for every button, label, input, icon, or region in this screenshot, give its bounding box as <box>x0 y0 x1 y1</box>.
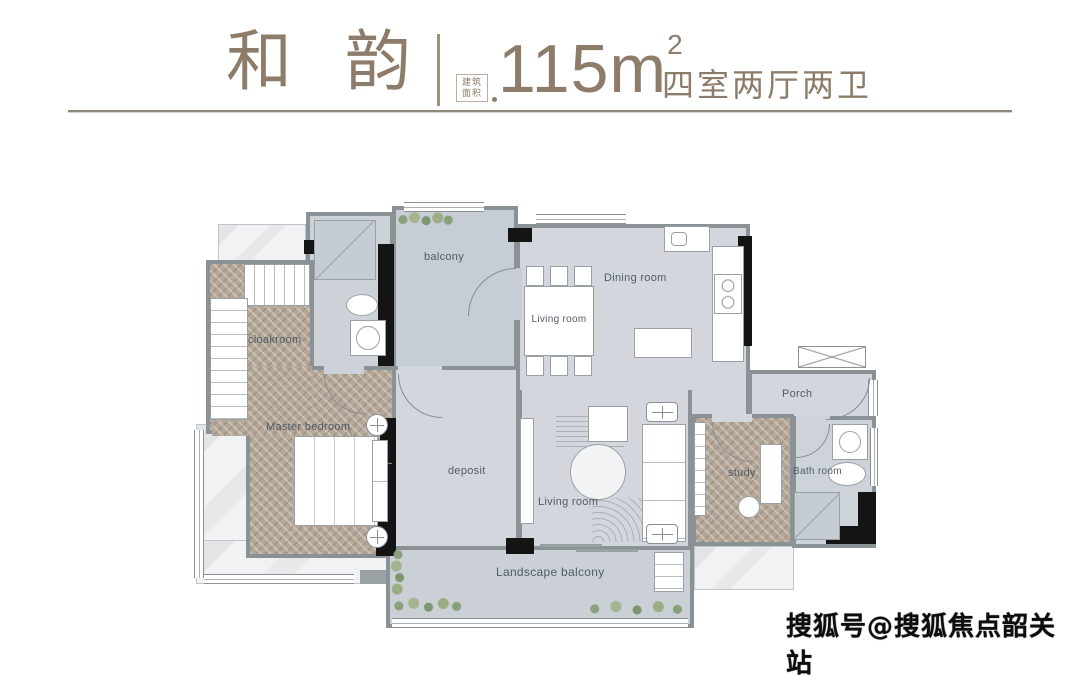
label-study: study <box>728 467 756 479</box>
sliding-door-leaf-1 <box>540 544 602 547</box>
dining-chair <box>550 266 568 286</box>
wall-black-2 <box>508 228 532 242</box>
floorplan-page: { "header": { "title": "和 韵", "area_stam… <box>0 0 1080 649</box>
round-rug <box>570 444 626 500</box>
bath-shower <box>794 492 840 540</box>
cloakroom-cabinet-top <box>244 264 310 306</box>
title-divider <box>437 34 440 106</box>
door-gap-bath <box>796 416 830 424</box>
study-chair <box>738 496 760 518</box>
stove <box>714 274 742 314</box>
label-dining-room: Dining room <box>604 272 667 284</box>
plan-title: 和 韵 <box>226 22 427 101</box>
bath-sink <box>832 424 868 460</box>
label-landscape-balcony: Landscape balcony <box>496 565 605 579</box>
plants-balcony-top <box>396 212 454 226</box>
label-cloakroom: cloakroom <box>248 334 301 346</box>
area-value: 115m2 <box>498 30 683 107</box>
plants-balcony-bottom-left <box>390 596 464 614</box>
sohu-watermark: 搜狐号@搜狐焦点韶关站 <box>786 606 1080 680</box>
wall-black-10 <box>858 492 876 528</box>
cloakroom-wardrobe-left <box>210 298 248 420</box>
window-living-top <box>536 214 626 224</box>
label-living-room-bottom: Living room <box>538 496 598 508</box>
door-gap-master-bath <box>324 366 364 374</box>
dining-chair <box>526 356 544 376</box>
balcony-bench <box>654 552 684 592</box>
label-porch: Porch <box>782 388 812 400</box>
dining-chair <box>550 356 568 376</box>
sofa-side-table-top <box>646 402 678 422</box>
tv-cabinet <box>520 418 534 524</box>
bed-pillows <box>372 440 388 522</box>
door-gap-study <box>712 414 752 422</box>
window-bath-right <box>870 428 878 486</box>
door-gap-deposit <box>398 366 442 374</box>
porch-closet <box>798 346 866 368</box>
plants-balcony-side <box>390 550 406 596</box>
area-exponent: 2 <box>667 29 683 60</box>
label-master-bedroom: Master bedroom <box>266 421 350 433</box>
label-deposit: deposit <box>448 465 486 477</box>
window-porch-right <box>868 380 878 416</box>
toilet-master-bath <box>346 294 378 316</box>
ottoman <box>588 406 628 442</box>
layout-spec: 四室两厅两卫 <box>662 60 872 106</box>
platform-bottom-right <box>694 546 794 590</box>
shower-master-bath <box>314 220 376 280</box>
window-balcony-top <box>404 202 484 212</box>
washer <box>350 320 386 356</box>
sofa-side-table-bottom <box>646 524 678 544</box>
header-rule <box>68 110 1012 113</box>
nightstand-top <box>366 414 388 436</box>
label-bath-room: Bath room <box>793 466 842 477</box>
area-stamp: 建筑 面积 <box>456 74 488 102</box>
window-balcony-bottom <box>392 618 688 628</box>
dining-chair <box>526 266 544 286</box>
sliding-door-leaf-2 <box>576 549 638 552</box>
bed <box>294 436 378 526</box>
area-stamp-line1: 建筑 <box>458 77 486 88</box>
kitchen-sink <box>664 226 710 252</box>
label-living-room-top: Living room <box>524 314 594 325</box>
label-balcony: balcony <box>424 251 464 263</box>
kitchen-island <box>634 328 692 358</box>
sink-basin <box>671 232 687 246</box>
wall-black-6 <box>506 538 534 554</box>
bath-sink-basin <box>839 431 861 453</box>
dining-chair <box>574 356 592 376</box>
terrace-top-left <box>218 224 306 262</box>
area-stamp-dot <box>492 97 497 102</box>
window-terrace-bottom <box>204 574 354 584</box>
window-terrace-left <box>194 430 204 578</box>
study-desk <box>760 444 782 504</box>
dining-chair <box>574 266 592 286</box>
study-wardrobe <box>694 422 706 516</box>
nightstand-bottom <box>366 526 388 548</box>
area-stamp-line2: 面积 <box>458 88 486 99</box>
plants-balcony-bottom-right <box>582 600 688 616</box>
washer-drum <box>356 326 380 350</box>
